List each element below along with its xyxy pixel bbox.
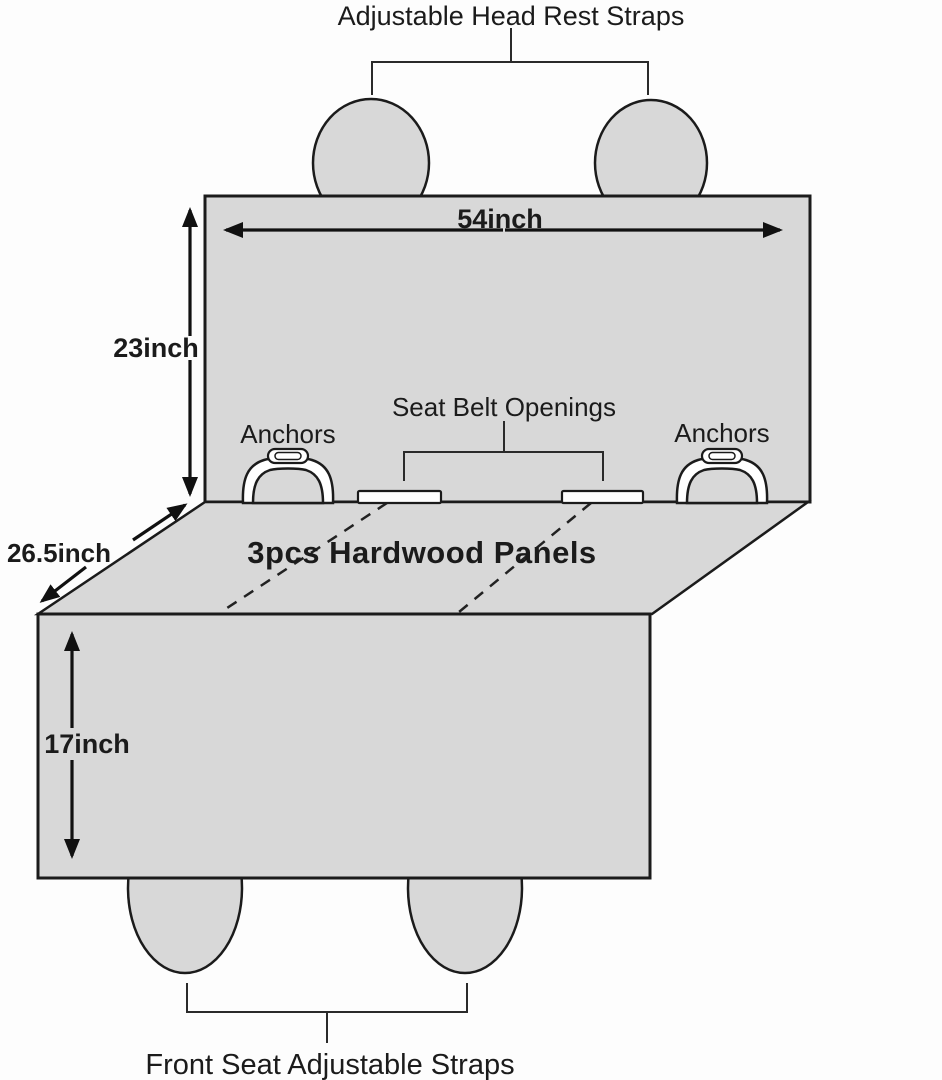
anchors-left-label: Anchors xyxy=(240,419,335,449)
front-panel xyxy=(38,614,650,878)
dim-26-5inch-label: 26.5inch xyxy=(7,538,111,568)
seat-belt-opening-left xyxy=(358,491,441,503)
seat-belt-opening-right xyxy=(562,491,643,503)
anchors-right-label: Anchors xyxy=(674,418,769,448)
front-seat-straps-label: Front Seat Adjustable Straps xyxy=(145,1049,514,1080)
dim-17inch-label: 17inch xyxy=(44,729,130,759)
head-rest-callout-bracket xyxy=(372,62,648,95)
front-straps-callout-bracket xyxy=(187,983,467,1012)
seat-belt-openings-label: Seat Belt Openings xyxy=(392,392,616,422)
seat-cover-diagram: Adjustable Head Rest Straps 54inch 23inc… xyxy=(0,0,942,1080)
head-rest-straps-label: Adjustable Head Rest Straps xyxy=(338,1,685,31)
hardwood-panels-label: 3pcs Hardwood Panels xyxy=(247,535,596,570)
dim-23inch-label: 23inch xyxy=(113,333,199,363)
dim-54inch-label: 54inch xyxy=(457,204,543,234)
seat-cover-diagram-stage: Adjustable Head Rest Straps 54inch 23inc… xyxy=(0,0,942,1080)
